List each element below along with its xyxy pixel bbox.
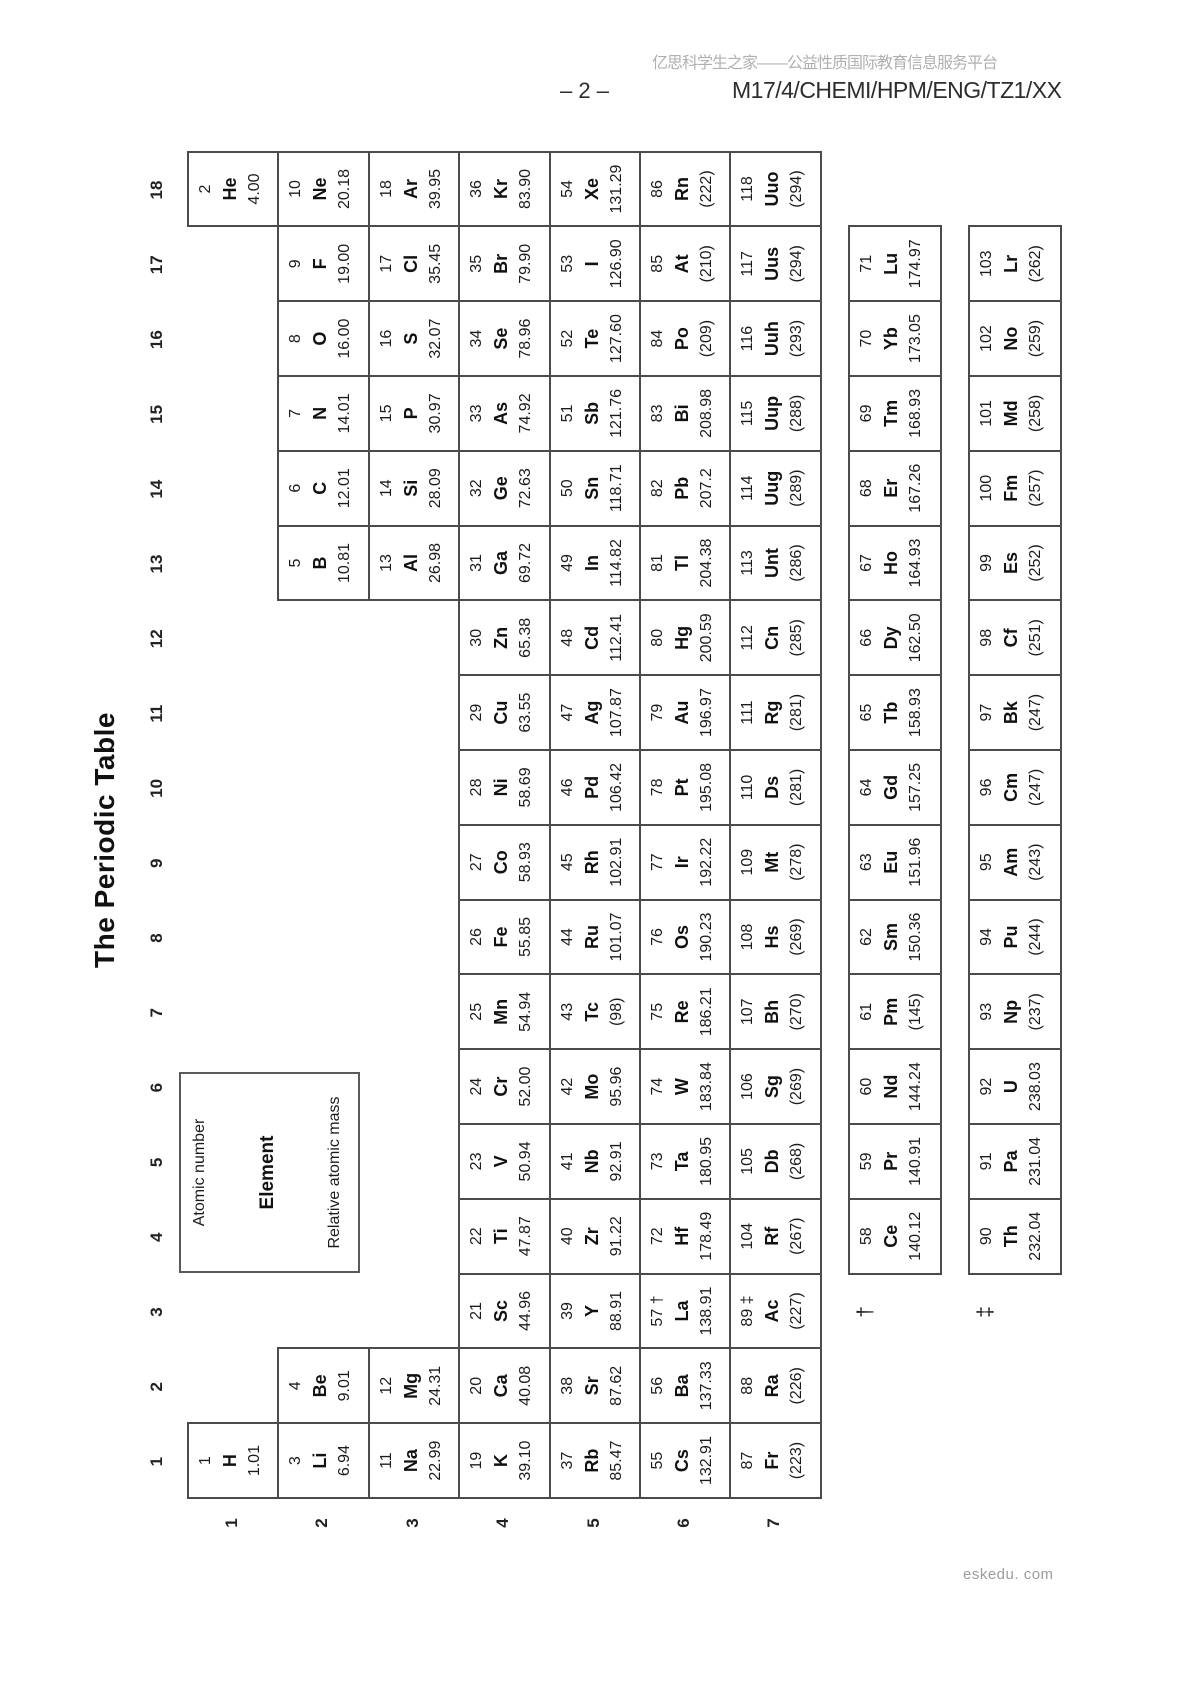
element-number: 13 <box>375 554 398 572</box>
element-symbol: Al <box>398 554 424 572</box>
element-mass: 174.97 <box>904 239 928 288</box>
group-label-10: 10 <box>139 751 175 826</box>
element-mass: (286) <box>785 544 809 581</box>
element-number: 4 <box>284 1381 307 1390</box>
element-cell-Cs: 55Cs132.91 <box>639 1422 731 1499</box>
element-symbol: Rf <box>759 1227 785 1246</box>
element-mass: (262) <box>1024 245 1048 282</box>
element-mass: 140.12 <box>904 1212 928 1261</box>
element-symbol: B <box>307 557 333 570</box>
element-number: 63 <box>855 853 878 871</box>
element-symbol: Pa <box>998 1150 1024 1172</box>
element-cell-Pd: 46Pd106.42 <box>549 749 641 826</box>
element-number: 43 <box>556 1003 579 1021</box>
element-mass: 207.2 <box>695 468 719 508</box>
element-cell-Cd: 48Cd112.41 <box>549 599 641 676</box>
element-number: 42 <box>556 1078 579 1096</box>
element-number: 53 <box>556 255 579 273</box>
element-mass: 87.62 <box>605 1366 629 1406</box>
element-symbol: Ar <box>398 179 424 199</box>
element-mass: (288) <box>785 395 809 432</box>
element-cell-Am: 95Am(243) <box>968 824 1062 901</box>
element-number: 21 <box>465 1302 488 1320</box>
element-mass: 238.03 <box>1024 1062 1048 1111</box>
element-number: 39 <box>556 1302 579 1320</box>
element-number: 27 <box>465 853 488 871</box>
element-cell-Ds: 110Ds(281) <box>729 749 821 826</box>
element-cell-Sm: 62Sm150.36 <box>848 899 942 976</box>
group-label-3: 3 <box>139 1275 175 1350</box>
element-cell-Sg: 106Sg(269) <box>729 1048 821 1125</box>
element-cell-Xe: 54Xe131.29 <box>549 151 641 228</box>
element-symbol: Lu <box>878 253 904 275</box>
element-number: 30 <box>465 629 488 647</box>
element-mass: (267) <box>785 1218 809 1255</box>
element-symbol: Sm <box>878 923 904 951</box>
element-symbol: Pd <box>579 776 605 799</box>
element-mass: (269) <box>785 918 809 955</box>
element-cell-Ga: 31Ga69.72 <box>458 525 550 602</box>
element-number: 38 <box>556 1377 579 1395</box>
element-number: 6 <box>284 484 307 493</box>
element-mass: 144.24 <box>904 1062 928 1111</box>
element-mass: 180.95 <box>695 1137 719 1186</box>
element-mass: 65.38 <box>514 618 538 658</box>
element-symbol: Ga <box>488 551 514 575</box>
element-mass: 58.69 <box>514 767 538 807</box>
element-symbol: Nb <box>579 1149 605 1173</box>
element-mass: (285) <box>785 619 809 656</box>
element-cell-Po: 84Po(209) <box>639 300 731 377</box>
element-symbol: Uus <box>759 247 785 281</box>
site-banner-text: 亿思科学生之家——公益性质国际教育信息服务平台 <box>652 49 997 73</box>
element-symbol: Rb <box>579 1449 605 1473</box>
element-cell-Er: 68Er167.26 <box>848 450 942 527</box>
element-mass: 14.01 <box>333 393 357 433</box>
element-mass: (210) <box>695 245 719 282</box>
element-mass: 79.90 <box>514 244 538 284</box>
element-mass: 151.96 <box>904 838 928 887</box>
element-cell-Bi: 83Bi208.98 <box>639 375 731 452</box>
element-mass: 74.92 <box>514 393 538 433</box>
element-number: 36 <box>465 180 488 198</box>
element-cell-F: 9F19.00 <box>277 225 369 302</box>
element-symbol: W <box>669 1078 695 1095</box>
element-number: 86 <box>646 180 669 198</box>
element-mass: 85.47 <box>605 1441 629 1481</box>
element-symbol: Sg <box>759 1075 785 1098</box>
element-number: 98 <box>975 629 998 647</box>
element-symbol: Uup <box>759 396 785 431</box>
element-cell-Ag: 47Ag107.87 <box>549 674 641 751</box>
element-number: 58 <box>855 1227 878 1245</box>
element-symbol: Es <box>998 552 1024 574</box>
group-label-2: 2 <box>139 1349 175 1424</box>
element-symbol: Ra <box>759 1374 785 1397</box>
element-symbol: Y <box>579 1305 605 1317</box>
element-symbol: Te <box>579 329 605 349</box>
element-cell-Fr: 87Fr(223) <box>729 1422 821 1499</box>
element-cell-O: 8O16.00 <box>277 300 369 377</box>
element-number: 107 <box>736 998 759 1025</box>
element-cell-Ar: 18Ar39.95 <box>368 151 460 228</box>
element-mass: 26.98 <box>424 543 448 583</box>
element-cell-In: 49In114.82 <box>549 525 641 602</box>
element-mass: 164.93 <box>904 539 928 588</box>
element-mass: (278) <box>785 844 809 881</box>
element-cell-Ni: 28Ni58.69 <box>458 749 550 826</box>
element-number: 69 <box>855 405 878 423</box>
element-symbol: Am <box>998 848 1024 877</box>
element-cell-No: 102No(259) <box>968 300 1062 377</box>
element-symbol: Kr <box>488 179 514 199</box>
element-number: 90 <box>975 1227 998 1245</box>
element-number: 41 <box>556 1153 579 1171</box>
element-mass: 112.41 <box>605 614 629 662</box>
period-label-4: 4 <box>458 1506 548 1540</box>
element-cell-Na: 11Na22.99 <box>368 1422 460 1499</box>
element-number: 76 <box>646 928 669 946</box>
element-number: 102 <box>975 325 998 352</box>
element-mass: 121.76 <box>605 389 629 438</box>
element-number: 10 <box>284 180 307 198</box>
element-cell-Hg: 80Hg200.59 <box>639 599 731 676</box>
element-mass: 183.84 <box>695 1062 719 1111</box>
element-cell-N: 7N14.01 <box>277 375 369 452</box>
element-number: 70 <box>855 330 878 348</box>
element-symbol: Pu <box>998 926 1024 949</box>
element-symbol: Au <box>669 701 695 725</box>
element-mass: (145) <box>904 993 928 1030</box>
element-number: 34 <box>465 330 488 348</box>
group-label-1: 1 <box>139 1424 175 1499</box>
group-label-13: 13 <box>139 527 175 602</box>
element-cell-Hf: 72Hf178.49 <box>639 1198 731 1275</box>
element-symbol: Uuh <box>759 321 785 356</box>
element-number: 64 <box>855 779 878 797</box>
element-mass: 204.38 <box>695 539 719 588</box>
element-number: 18 <box>375 180 398 198</box>
element-mass: 195.08 <box>695 763 719 812</box>
period-label-6: 6 <box>639 1506 729 1540</box>
element-mass: 83.90 <box>514 169 538 209</box>
element-cell-I: 53I126.90 <box>549 225 641 302</box>
element-cell-Li: 3Li6.94 <box>277 1422 369 1499</box>
legend-element-label: Element <box>257 1136 279 1210</box>
element-mass: 157.25 <box>904 763 928 812</box>
element-number: 52 <box>556 330 579 348</box>
element-mass: 39.10 <box>514 1441 538 1481</box>
element-number: 47 <box>556 704 579 722</box>
element-cell-Uup: 115Uup(288) <box>729 375 821 452</box>
element-symbol: Cl <box>398 255 424 273</box>
element-symbol: Co <box>488 850 514 874</box>
element-number: 67 <box>855 554 878 572</box>
period-label-7: 7 <box>729 1506 819 1540</box>
element-cell-Lr: 103Lr(262) <box>968 225 1062 302</box>
element-mass: 158.93 <box>904 688 928 737</box>
element-cell-Lu: 71Lu174.97 <box>848 225 942 302</box>
element-cell-Pm: 61Pm(145) <box>848 973 942 1050</box>
element-symbol: No <box>998 327 1024 351</box>
element-mass: 106.42 <box>605 763 629 812</box>
element-number: 115 <box>736 401 759 427</box>
element-cell-U: 92U238.03 <box>968 1048 1062 1125</box>
element-cell-Ce: 58Ce140.12 <box>848 1198 942 1275</box>
element-symbol: O <box>307 332 333 346</box>
element-mass: 50.94 <box>514 1141 538 1181</box>
group-label-11: 11 <box>139 676 175 751</box>
element-mass: (270) <box>785 993 809 1030</box>
group-label-9: 9 <box>139 826 175 901</box>
element-symbol: H <box>217 1454 243 1467</box>
element-cell-Br: 35Br79.90 <box>458 225 550 302</box>
element-cell-Fm: 100Fm(257) <box>968 450 1062 527</box>
group-label-17: 17 <box>139 227 175 302</box>
element-cell-Al: 13Al26.98 <box>368 525 460 602</box>
element-symbol: Pb <box>669 477 695 500</box>
element-symbol: Nd <box>878 1075 904 1099</box>
element-number: 22 <box>465 1227 488 1245</box>
element-number: 87 <box>736 1452 759 1470</box>
element-mass: 162.50 <box>904 613 928 662</box>
element-number: 51 <box>556 405 579 423</box>
element-mass: 131.29 <box>605 165 629 214</box>
element-cell-Mn: 25Mn54.94 <box>458 973 550 1050</box>
legend-box: Atomic number Element Relative atomic ma… <box>179 1072 360 1273</box>
element-symbol: Eu <box>878 851 904 874</box>
group-label-8: 8 <box>139 901 175 976</box>
element-cell-Ta: 73Ta180.95 <box>639 1123 731 1200</box>
element-mass: 16.00 <box>333 319 357 359</box>
element-cell-Th: 90Th232.04 <box>968 1198 1062 1275</box>
element-mass: 232.04 <box>1024 1212 1048 1261</box>
element-cell-Cl: 17Cl35.45 <box>368 225 460 302</box>
element-number: 92 <box>975 1078 998 1096</box>
legend-atomic-number-label: Atomic number <box>191 1119 209 1227</box>
element-number: 116 <box>736 326 759 352</box>
element-mass: 95.96 <box>605 1067 629 1107</box>
element-mass: 6.94 <box>333 1445 357 1476</box>
element-symbol: Sb <box>579 402 605 425</box>
element-number: 74 <box>646 1078 669 1096</box>
element-cell-Sc: 21Sc44.96 <box>458 1273 550 1350</box>
element-symbol: I <box>579 261 605 266</box>
element-cell-Fe: 26Fe55.85 <box>458 899 550 976</box>
element-mass: 200.59 <box>695 613 719 662</box>
element-cell-Ac: 89 ‡Ac(227) <box>729 1273 821 1350</box>
element-mass: 44.96 <box>514 1291 538 1331</box>
element-number: 65 <box>855 704 878 722</box>
element-symbol: Mo <box>579 1074 605 1100</box>
element-mass: 28.09 <box>424 468 448 508</box>
element-cell-B: 5B10.81 <box>277 525 369 602</box>
element-cell-At: 85At(210) <box>639 225 731 302</box>
element-symbol: Si <box>398 480 424 497</box>
element-cell-Ho: 67Ho164.93 <box>848 525 942 602</box>
element-symbol: Se <box>488 328 514 350</box>
element-number: 14 <box>375 479 398 497</box>
element-symbol: Np <box>998 1000 1024 1024</box>
element-symbol: Fr <box>759 1452 785 1470</box>
element-symbol: Lr <box>998 255 1024 273</box>
element-mass: 39.95 <box>424 169 448 209</box>
element-mass: 78.96 <box>514 319 538 359</box>
element-mass: 35.45 <box>424 244 448 284</box>
group-label-16: 16 <box>139 302 175 377</box>
element-cell-Ge: 32Ge72.63 <box>458 450 550 527</box>
element-mass: 47.87 <box>514 1216 538 1256</box>
element-symbol: Th <box>998 1225 1024 1247</box>
element-mass: (223) <box>785 1442 809 1479</box>
element-mass: 9.01 <box>333 1370 357 1401</box>
group-label-15: 15 <box>139 377 175 452</box>
element-mass: 1.01 <box>243 1445 267 1476</box>
element-number: 104 <box>736 1223 759 1250</box>
element-number: 9 <box>284 259 307 268</box>
element-number: 40 <box>556 1227 579 1245</box>
element-cell-Eu: 63Eu151.96 <box>848 824 942 901</box>
element-symbol: Re <box>669 1000 695 1023</box>
element-mass: 186.21 <box>695 987 719 1036</box>
element-symbol: Be <box>307 1374 333 1397</box>
element-number: 32 <box>465 479 488 497</box>
element-symbol: Hg <box>669 626 695 650</box>
period-label-3: 3 <box>368 1506 458 1540</box>
element-mass: 132.91 <box>695 1436 719 1485</box>
element-mass: 88.91 <box>605 1291 629 1331</box>
element-mass: (237) <box>1024 993 1048 1030</box>
element-cell-W: 74W183.84 <box>639 1048 731 1125</box>
element-mass: 137.33 <box>695 1361 719 1410</box>
element-mass: 107.87 <box>605 688 629 737</box>
element-mass: (281) <box>785 769 809 806</box>
element-symbol: Ag <box>579 701 605 725</box>
element-symbol: Ne <box>307 178 333 201</box>
element-cell-Cu: 29Cu63.55 <box>458 674 550 751</box>
element-symbol: Xe <box>579 178 605 200</box>
element-mass: 24.31 <box>424 1366 448 1406</box>
element-number: 49 <box>556 554 579 572</box>
element-mass: (222) <box>695 170 719 207</box>
element-mass: 102.91 <box>605 838 629 887</box>
element-cell-Sr: 38Sr87.62 <box>549 1347 641 1424</box>
element-number: 19 <box>465 1452 488 1470</box>
element-mass: (243) <box>1024 844 1048 881</box>
element-cell-C: 6C12.01 <box>277 450 369 527</box>
element-symbol: Uug <box>759 471 785 506</box>
element-symbol: Cr <box>488 1077 514 1097</box>
element-number: 48 <box>556 629 579 647</box>
element-mass: 54.94 <box>514 992 538 1032</box>
element-number: 57 † <box>646 1295 669 1326</box>
element-number: 15 <box>375 405 398 423</box>
element-number: 73 <box>646 1153 669 1171</box>
element-symbol: Ac <box>759 1300 785 1323</box>
element-number: 60 <box>855 1078 878 1096</box>
element-symbol: Ge <box>488 476 514 500</box>
element-number: 11 <box>375 1452 398 1469</box>
element-number: 79 <box>646 704 669 722</box>
element-number: 97 <box>975 704 998 722</box>
element-number: 83 <box>646 405 669 423</box>
element-symbol: Ta <box>669 1152 695 1172</box>
element-number: 91 <box>975 1153 998 1171</box>
element-mass: 231.04 <box>1024 1137 1048 1186</box>
element-symbol: Ho <box>878 551 904 575</box>
element-number: 101 <box>975 400 998 427</box>
element-number: 100 <box>975 475 998 502</box>
element-symbol: Db <box>759 1149 785 1173</box>
element-cell-V: 23V50.94 <box>458 1123 550 1200</box>
element-mass: 55.85 <box>514 917 538 957</box>
element-cell-Uus: 117Uus(294) <box>729 225 821 302</box>
element-cell-Be: 4Be9.01 <box>277 1347 369 1424</box>
element-cell-Si: 14Si28.09 <box>368 450 460 527</box>
element-mass: 127.60 <box>605 314 629 363</box>
element-mass: 69.72 <box>514 543 538 583</box>
element-number: 75 <box>646 1003 669 1021</box>
element-mass: 168.93 <box>904 389 928 438</box>
element-mass: 92.91 <box>605 1141 629 1181</box>
element-symbol: Cn <box>759 626 785 650</box>
element-mass: 192.22 <box>695 838 719 887</box>
element-number: 93 <box>975 1003 998 1021</box>
element-symbol: Fe <box>488 927 514 948</box>
element-symbol: Zr <box>579 1227 605 1245</box>
element-number: 50 <box>556 479 579 497</box>
element-cell-Np: 93Np(237) <box>968 973 1062 1050</box>
element-cell-Cr: 24Cr52.00 <box>458 1048 550 1125</box>
element-cell-Rn: 86Rn(222) <box>639 151 731 228</box>
group-label-18: 18 <box>139 153 175 228</box>
element-number: 118 <box>736 176 759 202</box>
element-number: 62 <box>855 928 878 946</box>
actinide-double-dagger-marker: ‡ <box>974 1274 998 1349</box>
element-symbol: Ru <box>579 925 605 949</box>
lanthanide-dagger-marker: † <box>854 1274 878 1349</box>
element-number: 23 <box>465 1153 488 1171</box>
element-symbol: Cd <box>579 626 605 650</box>
element-cell-Mo: 42Mo95.96 <box>549 1048 641 1125</box>
element-number: 114 <box>736 475 759 501</box>
element-mass: 63.55 <box>514 693 538 733</box>
element-cell-Tl: 81Tl204.38 <box>639 525 731 602</box>
element-symbol: Rg <box>759 701 785 725</box>
element-mass: (209) <box>695 320 719 357</box>
element-symbol: S <box>398 333 424 345</box>
element-cell-Os: 76Os190.23 <box>639 899 731 976</box>
element-cell-Ru: 44Ru101.07 <box>549 899 641 976</box>
element-number: 81 <box>646 554 669 572</box>
element-cell-Sn: 50Sn118.71 <box>549 450 641 527</box>
period-label-2: 2 <box>277 1506 367 1540</box>
element-number: 28 <box>465 779 488 797</box>
element-cell-Y: 39Y88.91 <box>549 1273 641 1350</box>
element-symbol: As <box>488 402 514 425</box>
element-cell-Tb: 65Tb158.93 <box>848 674 942 751</box>
element-cell-Ne: 10Ne20.18 <box>277 151 369 228</box>
element-symbol: Er <box>878 479 904 498</box>
element-cell-Cf: 98Cf(251) <box>968 599 1062 676</box>
element-number: 31 <box>465 554 488 572</box>
element-number: 7 <box>284 409 307 418</box>
element-cell-Pr: 59Pr140.91 <box>848 1123 942 1200</box>
element-symbol: Tl <box>669 555 695 571</box>
element-cell-Nb: 41Nb92.91 <box>549 1123 641 1200</box>
element-mass: 126.90 <box>605 239 629 288</box>
element-symbol: F <box>307 258 333 269</box>
